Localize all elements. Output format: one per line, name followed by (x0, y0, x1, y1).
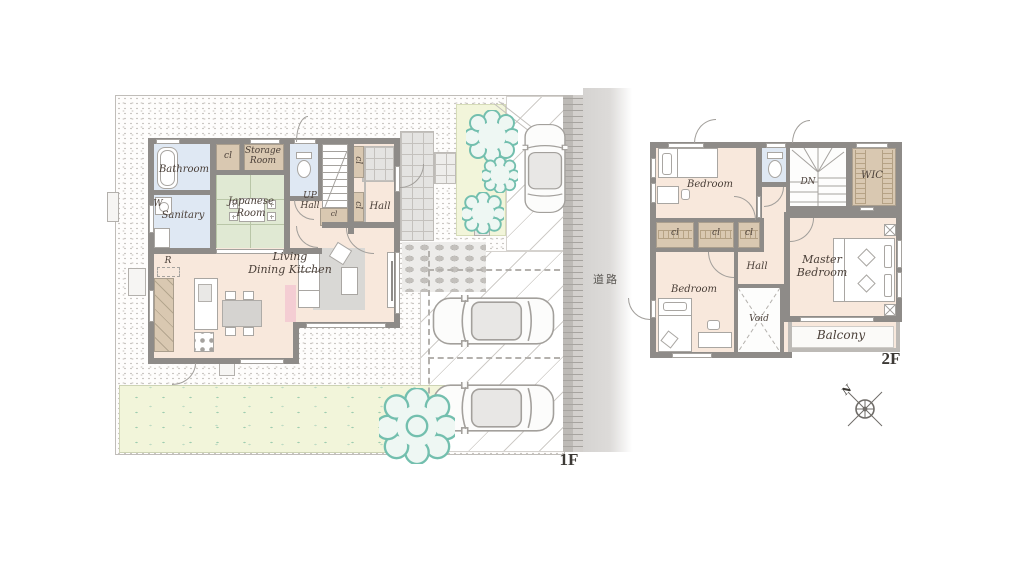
window (156, 139, 180, 144)
utility-meter (107, 192, 119, 222)
pillow (884, 274, 892, 297)
wall (786, 148, 790, 208)
room-label-closet-top: cl (217, 151, 239, 161)
wall (148, 248, 216, 254)
storage-line2: Room (240, 156, 286, 166)
ac-unit (128, 268, 146, 296)
wall (216, 170, 284, 175)
compass-north-label: N (840, 383, 856, 399)
room-label-balcony: Balcony (806, 329, 876, 343)
pillow (662, 153, 672, 175)
room-label-japanese: Japanese Room (224, 196, 278, 219)
road-label: 道路 (584, 271, 628, 287)
bed-cushion (857, 274, 875, 292)
room-label-dn: DN (794, 177, 822, 187)
bed-single (658, 298, 692, 352)
car-parked-1 (432, 295, 555, 347)
tv (391, 261, 393, 301)
wall (293, 322, 299, 364)
room-label-closet-left: cl (664, 228, 686, 238)
tree-icon (462, 192, 504, 234)
balcony-parapet (896, 322, 900, 352)
room-label-bedroom-south: Bedroom (662, 284, 726, 296)
window (651, 158, 656, 178)
casement-window-arc (792, 120, 810, 143)
ldk-line1: Living (244, 251, 336, 264)
floorplan-canvas: Bathroom W Sanitary cl Storage Room Japa… (0, 0, 1024, 578)
refrigerator-space (157, 267, 180, 277)
genkan-tiles (362, 146, 394, 182)
dining-chair (243, 291, 254, 300)
window-sliding-living (306, 323, 386, 328)
toilet1f-bowl (297, 160, 311, 178)
desk (657, 186, 679, 204)
master-line1: Master (792, 254, 852, 267)
dining-table (222, 300, 262, 327)
room-label-master: Master Bedroom (792, 254, 852, 279)
window (250, 139, 280, 144)
room-label-hall2f: Hall (740, 261, 774, 273)
parking-separator (428, 269, 560, 271)
window (856, 143, 888, 148)
wall (650, 248, 764, 252)
ldk-line2: Dining Kitchen (244, 264, 336, 277)
car-icon (432, 295, 555, 347)
window (651, 300, 656, 318)
room-label-bathroom: Bathroom (156, 164, 212, 176)
casement-window-arc (694, 119, 716, 143)
car-icon (523, 124, 568, 214)
toilet2f-tank (767, 152, 783, 159)
stone-path (402, 242, 486, 292)
window (395, 252, 400, 314)
back-step (219, 363, 235, 376)
bed-cushion (660, 330, 678, 348)
window-sliding-balcony (800, 317, 874, 322)
room-label-void: Void (742, 314, 776, 324)
desk (698, 332, 732, 348)
coffee-table (341, 267, 358, 295)
room-label-refrigerator: R (160, 256, 176, 266)
room-label-closet-mid: cl (704, 228, 728, 238)
toilet1f-tank (296, 152, 312, 159)
porch-step (434, 152, 456, 184)
window (897, 272, 902, 298)
sink (198, 284, 212, 302)
pillow (663, 302, 687, 311)
room-label-ldk: Living Dining Kitchen (244, 251, 336, 276)
japanese-line1: Japanese (224, 196, 278, 208)
tree-icon (466, 110, 518, 162)
room-label-closet-right: cl (738, 228, 760, 238)
chair (707, 320, 720, 330)
bed-cushion (857, 248, 875, 266)
tree-icon (379, 388, 455, 464)
wall (760, 218, 764, 252)
wall (734, 252, 738, 352)
parking-separator (428, 357, 560, 359)
washbasin (154, 228, 170, 248)
room-label-closet-entry-upper: cl (353, 151, 363, 169)
window (672, 353, 712, 358)
floor1-label: 1F (552, 450, 586, 470)
nightstand (884, 224, 896, 236)
door-gap (757, 196, 761, 218)
road-surface (583, 88, 632, 452)
dining-chair (225, 291, 236, 300)
nightstand (884, 304, 896, 316)
compass-icon: N (838, 382, 888, 432)
window (766, 143, 786, 148)
dining-chair (243, 327, 254, 336)
room-label-wic: WIC (850, 170, 894, 182)
room-label-up-hall: UP Hall (292, 191, 328, 212)
room-label-closet-under-stairs: cl (320, 210, 348, 219)
window (240, 359, 284, 364)
window (897, 240, 902, 268)
wall (210, 138, 216, 253)
up-line: UP (292, 191, 328, 201)
window (668, 143, 704, 148)
door-gap-wic (860, 207, 874, 211)
kitchen-sink-counter (194, 278, 218, 330)
wall (694, 218, 698, 252)
floor2-label: 2F (876, 349, 906, 369)
tree-icon (482, 157, 518, 193)
master-line2: Bedroom (792, 267, 852, 280)
kitchen-cabinet (154, 278, 174, 352)
stove (194, 332, 214, 352)
window (651, 183, 656, 203)
bed-single (658, 148, 718, 178)
wall (148, 190, 216, 195)
pillow (884, 245, 892, 268)
dining-chair (225, 327, 236, 336)
toilet2f-bowl (768, 160, 782, 178)
car-vertical (523, 124, 568, 214)
storage-line1: Storage (240, 146, 286, 156)
kitchen-partition (285, 285, 296, 322)
chair (681, 189, 690, 200)
room-label-washer: W (150, 199, 166, 209)
room-label-storage: Storage Room (240, 146, 286, 167)
room-label-bedroom-north: Bedroom (678, 179, 742, 191)
window (149, 290, 154, 322)
japanese-line2: Room (224, 208, 278, 220)
wall (734, 284, 784, 288)
room-label-sanitary: Sanitary (156, 210, 210, 222)
room-label-entry-hall: Hall (360, 201, 400, 213)
